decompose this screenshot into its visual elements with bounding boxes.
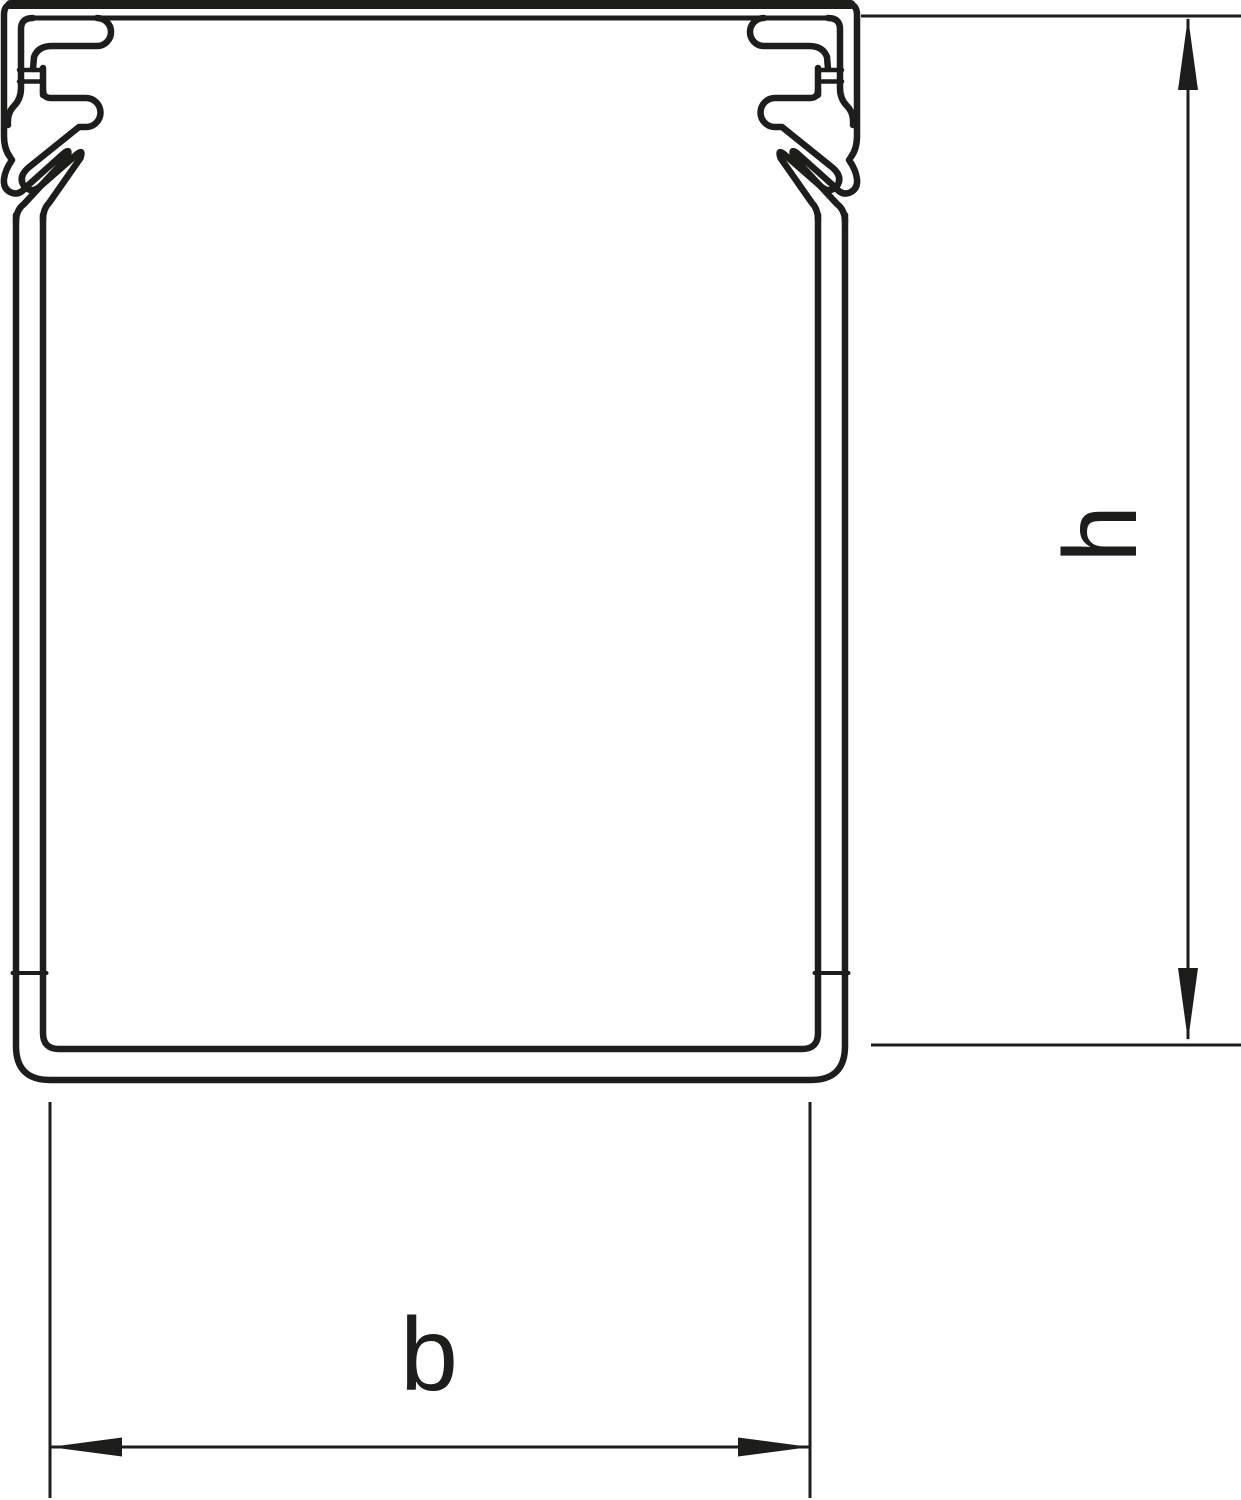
duct-outer-wall-and-bottom xyxy=(16,215,845,1080)
h-arrow-down xyxy=(1178,968,1198,1041)
left-clip-assembly xyxy=(4,5,111,223)
duct-cross-section-drawing xyxy=(0,0,1241,1500)
height-dimension-label: h xyxy=(1049,505,1153,563)
b-arrow-left xyxy=(50,1438,122,1457)
right-clip-assembly xyxy=(750,5,857,223)
duct-inner-wall-and-floor xyxy=(43,215,818,1049)
b-arrow-right xyxy=(738,1438,810,1457)
h-arrow-up xyxy=(1178,17,1198,90)
technical-drawing-canvas: h b xyxy=(0,0,1241,1500)
width-dimension-label: b xyxy=(400,1303,458,1407)
